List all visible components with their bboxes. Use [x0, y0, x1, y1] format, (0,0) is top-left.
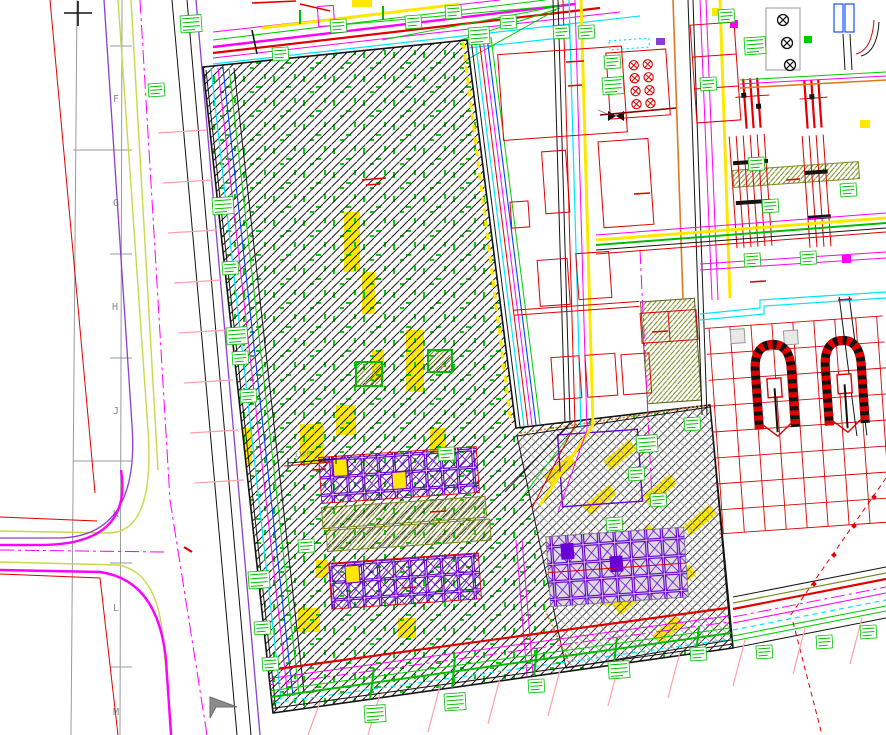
manifold-east: [798, 79, 829, 129]
furnace-u-2: [824, 339, 866, 433]
buildings: [495, 22, 760, 402]
grid-ticks: [73, 46, 132, 667]
survey-grid: F G H J K L M: [64, 0, 132, 735]
red-boundary-diamond-line: [790, 478, 886, 735]
grid-label-j: J: [113, 406, 119, 417]
plant-piping: [596, 4, 886, 320]
flange-stack: [766, 8, 800, 71]
plant-road-band: [596, 213, 886, 254]
grid-label-h: H: [112, 302, 118, 313]
mouse-cursor-arrow: [210, 697, 237, 718]
southeast-road: [733, 478, 886, 735]
module-row-2: [329, 553, 482, 609]
north-band-right: [740, 72, 886, 88]
pipe-bundle-east: [802, 134, 833, 247]
grid-label-f: F: [113, 94, 119, 105]
module-cluster-3: [546, 527, 689, 606]
grid-label-l: L: [113, 603, 119, 614]
dimension-text: 1120: [294, 450, 311, 459]
furnace-u-1: [754, 343, 796, 437]
cad-viewport[interactable]: F G H J K L M: [0, 0, 886, 735]
furnace-platform: [703, 294, 886, 534]
cad-canvas[interactable]: F G H J K L M: [0, 0, 886, 735]
benchmark-cross-icon: [64, 1, 92, 26]
